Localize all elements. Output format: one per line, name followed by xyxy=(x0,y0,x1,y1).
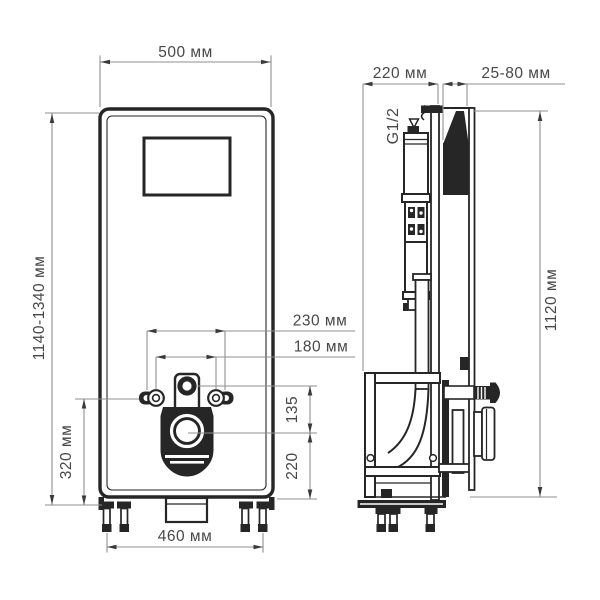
flush-unit-housing xyxy=(439,108,473,497)
technical-drawing: 500 мм 1140-1340 мм 230 мм 18 xyxy=(0,0,600,600)
dim-wall-offset-label: 25-80 мм xyxy=(481,65,550,82)
water-inlet-elbow xyxy=(175,374,199,412)
dim-base-width-label: 460 мм xyxy=(158,528,212,545)
dim-front-width-label: 500 мм xyxy=(158,44,212,61)
side-view xyxy=(358,106,501,533)
side-legs xyxy=(376,508,438,532)
dim-side-height-label: 1120 мм xyxy=(543,269,560,331)
dim-fixing-height-label: 320 мм xyxy=(58,425,75,479)
dim-outlet-height: 220 xyxy=(277,433,317,499)
outlet-bend xyxy=(161,407,214,477)
panel-bracket xyxy=(460,357,470,370)
dim-front-height-label: 1140-1340 мм xyxy=(31,256,48,361)
frame-upright xyxy=(431,106,439,500)
outlet-box xyxy=(166,498,207,522)
dim-fixing-inner-label: 180 мм xyxy=(294,339,348,356)
dim-side-depth-label: 220 мм xyxy=(373,65,427,82)
drawing-canvas: 500 мм 1140-1340 мм 230 мм 18 xyxy=(0,0,600,600)
dim-fixing-outer-label: 230 мм xyxy=(293,313,347,330)
water-inlet-thread-label: G1/2 xyxy=(385,108,402,145)
dim-inlet-offset-label: 135 xyxy=(284,396,301,423)
dim-front-width: 500 мм xyxy=(100,44,271,107)
dim-outlet-height-label: 220 xyxy=(284,452,301,479)
front-view xyxy=(99,109,275,532)
dim-base-width: 460 мм xyxy=(107,528,263,553)
flush-plate-window xyxy=(144,138,230,195)
toilet-outlet-pipe xyxy=(474,408,495,461)
